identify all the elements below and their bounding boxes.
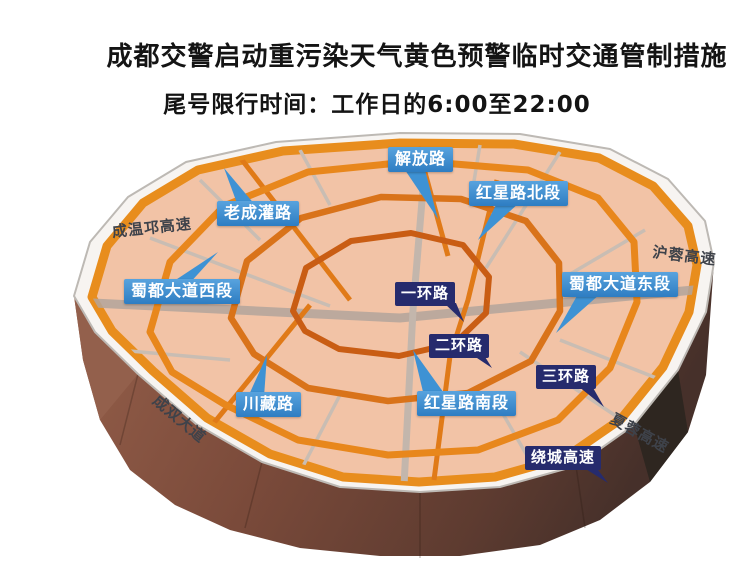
label-second-ring-road: 二环路 — [429, 334, 489, 358]
traffic-restriction-infographic: 成都交警启动重污染天气黄色预警临时交通管制措施 尾号限行时间：工作日的6:00至… — [0, 0, 754, 579]
label-shudu-avenue-east: 蜀都大道东段 — [562, 272, 678, 297]
label-first-ring-road: 一环路 — [395, 282, 455, 306]
label-raocheng-expressway: 绕城高速 — [525, 446, 601, 470]
label-third-ring-road: 三环路 — [536, 365, 596, 389]
label-laochengguan-road: 老成灌路 — [217, 201, 299, 226]
label-hongxing-road-north: 红星路北段 — [469, 181, 568, 206]
label-hongxing-road-south: 红星路南段 — [417, 391, 516, 416]
label-chuanzang-road: 川藏路 — [236, 392, 301, 417]
label-shudu-avenue-west: 蜀都大道西段 — [124, 279, 240, 304]
label-jiefang-road: 解放路 — [388, 147, 453, 172]
